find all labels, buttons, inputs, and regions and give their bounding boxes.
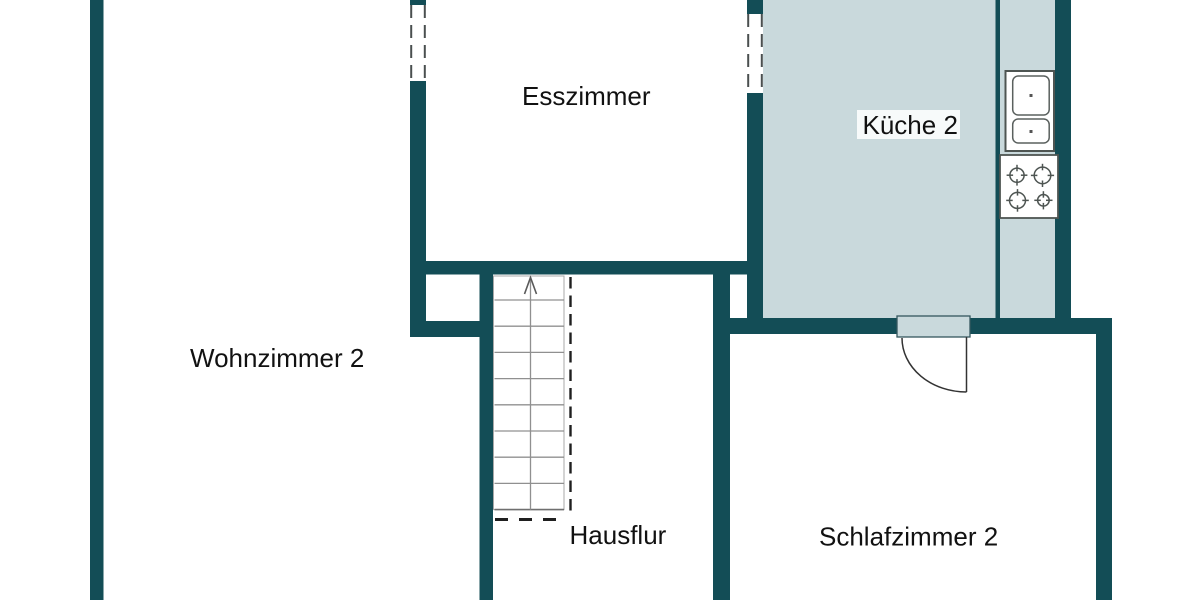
svg-text:Wohnzimmer 2: Wohnzimmer 2 xyxy=(190,343,364,373)
svg-text:Hausflur: Hausflur xyxy=(570,520,667,550)
svg-text:Schlafzimmer 2: Schlafzimmer 2 xyxy=(819,522,998,552)
svg-text:Küche 2: Küche 2 xyxy=(863,110,958,140)
svg-text:Esszimmer: Esszimmer xyxy=(522,81,651,111)
